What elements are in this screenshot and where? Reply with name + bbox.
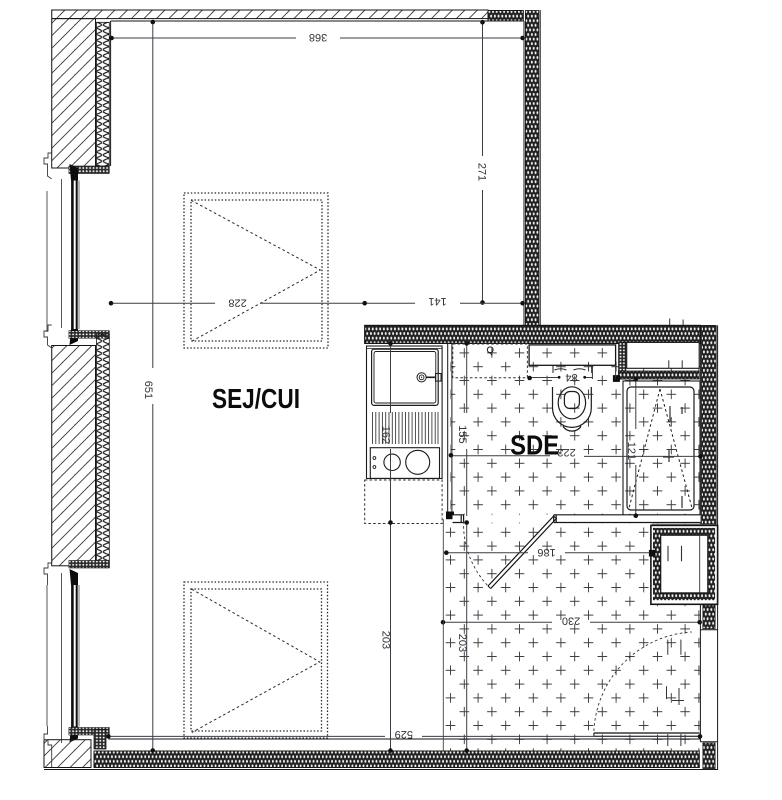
svg-text:203: 203 [380,631,392,649]
svg-text:271: 271 [476,163,488,181]
svg-text:155: 155 [456,425,468,443]
svg-text:186: 186 [537,546,555,558]
svg-text:SEJ/CUI: SEJ/CUI [212,383,300,414]
svg-text:230: 230 [562,614,580,626]
svg-text:121: 121 [625,442,637,460]
svg-text:651: 651 [142,381,154,399]
svg-text:84: 84 [565,371,577,383]
svg-text:SDE: SDE [510,430,559,461]
svg-text:228: 228 [228,296,246,308]
svg-text:223: 223 [557,446,575,458]
svg-text:162: 162 [380,426,392,444]
svg-text:203: 203 [456,634,468,652]
svg-text:368: 368 [309,31,327,43]
svg-text:141: 141 [428,295,446,307]
svg-text:529: 529 [395,728,413,740]
